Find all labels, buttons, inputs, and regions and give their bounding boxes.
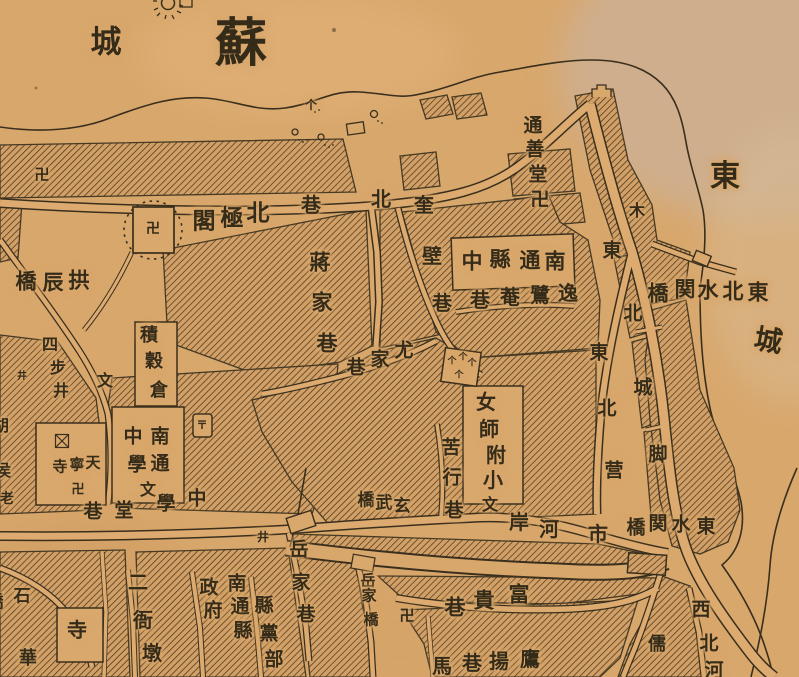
nvshifuxiao-compound [463,386,523,504]
map-canvas [0,0,799,677]
fort-beijige [124,201,182,259]
bridge-yuejia [351,554,375,572]
block [136,548,306,677]
block [0,139,356,198]
bridge-dongshuiguan [627,553,666,576]
block [452,93,487,119]
shield-mark-box [193,414,212,437]
nantongzhongxue-compound [112,407,184,503]
si-temple-compound [57,608,103,662]
jigucang-compound [135,322,177,406]
tianningsi-compound [36,423,106,505]
fort-square [133,207,174,253]
tree-grove-box [441,348,481,387]
block [420,95,453,119]
xianzhong-compound [451,234,575,290]
block [400,152,440,190]
historical-map-of-nantong: 蘇城東城閣極北橋辰拱卍卍北巷奎壁巷蔣家巷尤家巷中縣通南巷菴鷺逸通善堂卍橋関水北東… [0,0,799,677]
